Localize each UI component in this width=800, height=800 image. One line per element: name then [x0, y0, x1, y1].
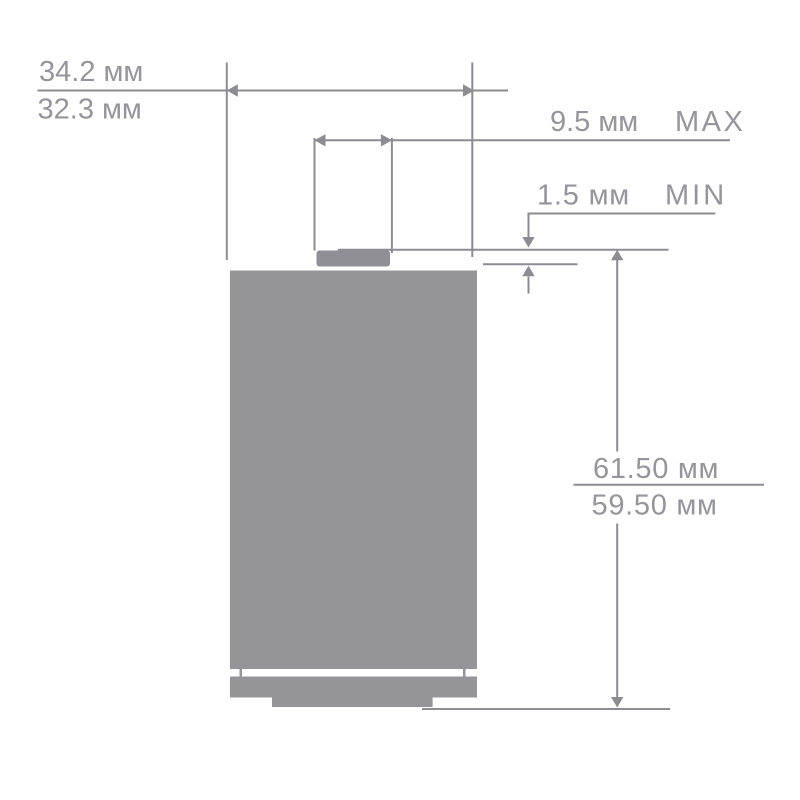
svg-text:59.50 мм: 59.50 мм — [592, 490, 718, 522]
svg-text:MIN: MIN — [665, 180, 727, 212]
svg-text:32.3 мм: 32.3 мм — [38, 94, 142, 126]
svg-text:34.2 мм: 34.2 мм — [39, 56, 143, 88]
svg-text:1.5 мм: 1.5 мм — [537, 180, 630, 212]
svg-text:MAX: MAX — [675, 106, 745, 138]
svg-text:61.50 мм: 61.50 мм — [593, 453, 719, 485]
svg-text:9.5 мм: 9.5 мм — [550, 106, 638, 138]
